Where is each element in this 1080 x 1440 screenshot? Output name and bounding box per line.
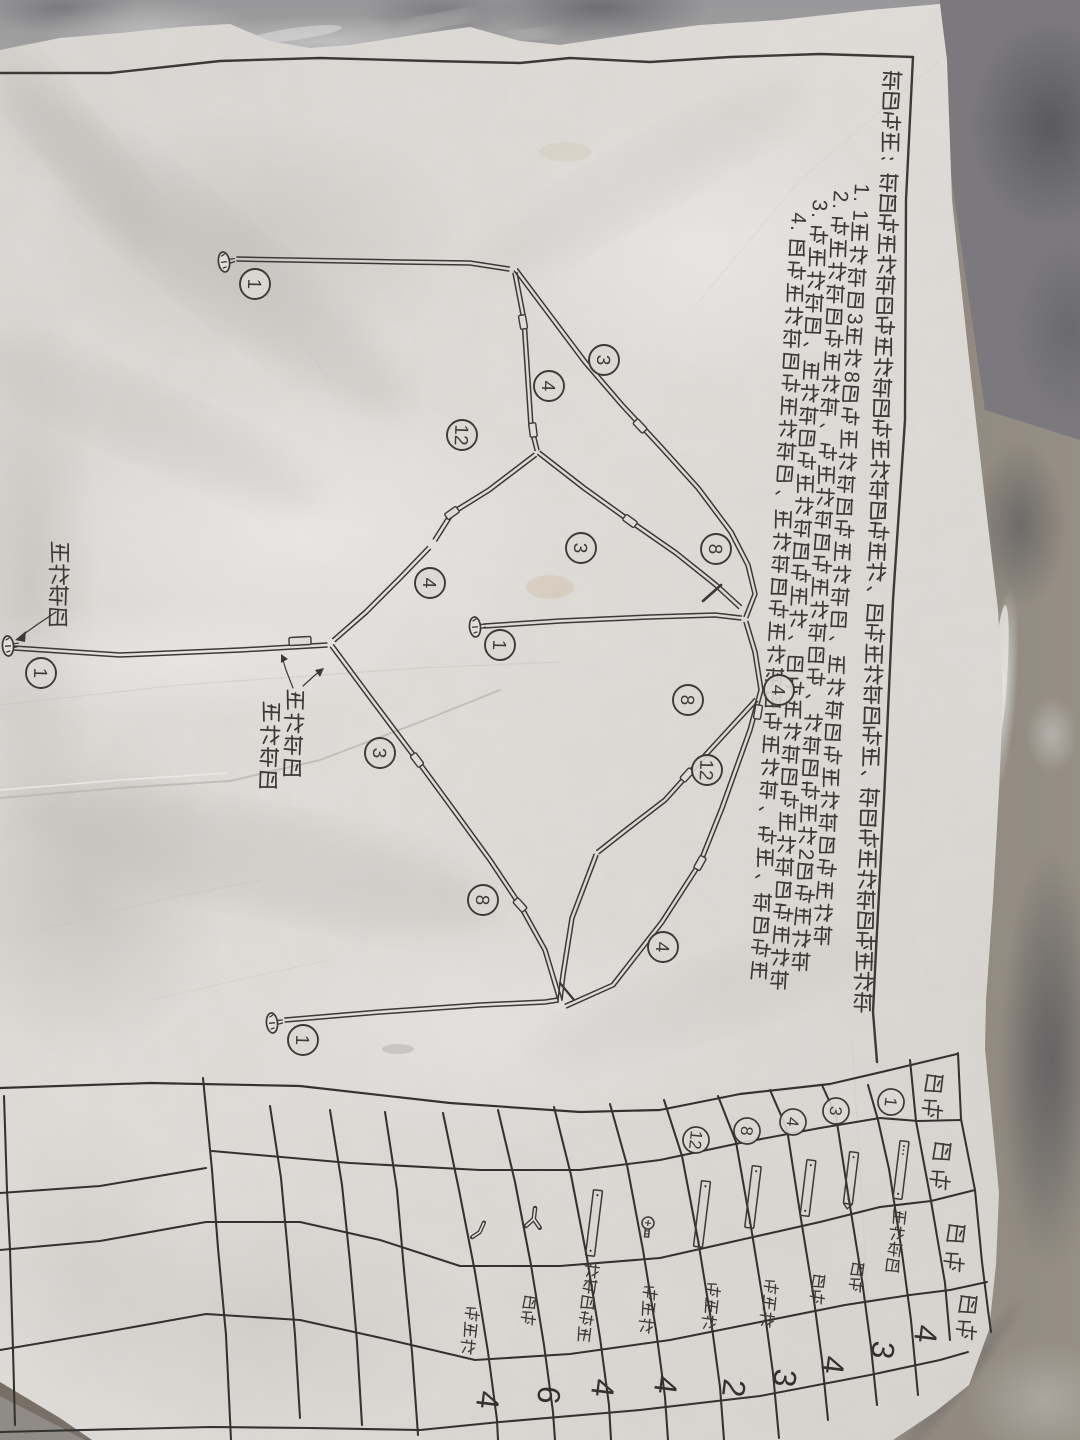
svg-text:12: 12 <box>685 1130 706 1151</box>
svg-text:1: 1 <box>849 183 873 196</box>
svg-text:8: 8 <box>737 1125 757 1136</box>
svg-text:12: 12 <box>695 759 717 781</box>
svg-text:1: 1 <box>291 1034 312 1045</box>
svg-text:2: 2 <box>828 190 852 203</box>
svg-text:4: 4 <box>651 941 672 953</box>
svg-text:1: 1 <box>243 278 264 289</box>
svg-text:1: 1 <box>848 209 872 222</box>
svg-text:4: 4 <box>767 684 788 696</box>
svg-text:4: 4 <box>783 1116 803 1127</box>
svg-text:4: 4 <box>537 380 558 392</box>
svg-text:4: 4 <box>786 212 810 225</box>
svg-text:8: 8 <box>471 894 492 905</box>
svg-text:3: 3 <box>843 312 867 325</box>
svg-text:3: 3 <box>592 354 613 365</box>
svg-text:3: 3 <box>569 542 590 553</box>
svg-text:3: 3 <box>826 1105 846 1116</box>
svg-text:3: 3 <box>368 747 389 758</box>
svg-text:8: 8 <box>676 694 697 705</box>
svg-text:12: 12 <box>450 424 472 446</box>
svg-text:8: 8 <box>840 371 864 384</box>
svg-text:1: 1 <box>488 639 509 650</box>
svg-text:4: 4 <box>418 577 439 589</box>
svg-text:3: 3 <box>807 199 831 212</box>
svg-text:1: 1 <box>29 667 50 678</box>
svg-text:1: 1 <box>881 1096 901 1107</box>
svg-text:.: . <box>786 225 809 232</box>
svg-text:8: 8 <box>704 543 725 554</box>
svg-text:2: 2 <box>794 848 818 861</box>
